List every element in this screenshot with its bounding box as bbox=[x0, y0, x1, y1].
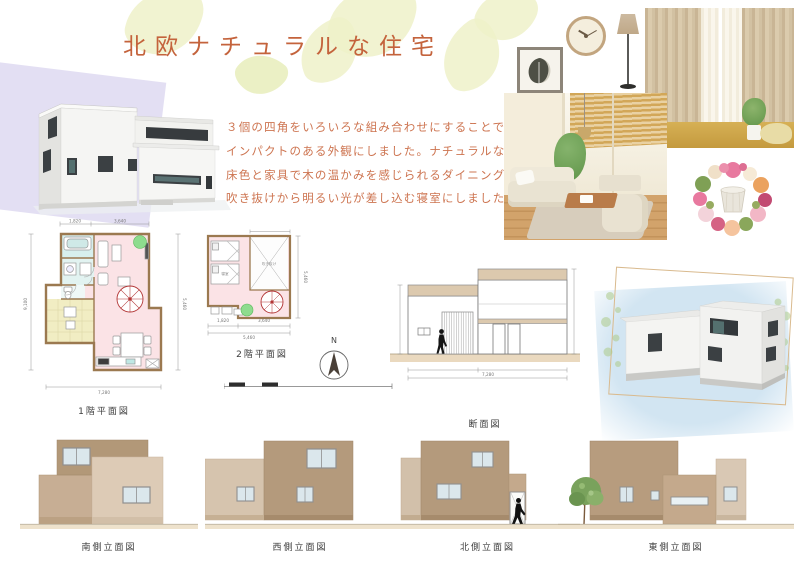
dimension-text: 7,280 bbox=[482, 372, 494, 377]
clock-center-dot bbox=[584, 34, 588, 38]
spiral-staircase bbox=[261, 291, 283, 313]
plant bbox=[241, 304, 253, 316]
svg-text:7,280: 7,280 bbox=[98, 390, 110, 395]
house-3d-render-front bbox=[15, 88, 237, 218]
page-title: 北欧ナチュラルな住宅 bbox=[123, 27, 443, 61]
elevation-east: 東側立面図 bbox=[558, 432, 794, 553]
spiral-staircase bbox=[117, 286, 143, 312]
presentation-board: { "page": { "title": "北欧ナチュラルな住宅" }, "de… bbox=[0, 0, 794, 561]
lamp-base bbox=[620, 84, 636, 89]
svg-text:5,460: 5,460 bbox=[182, 298, 187, 310]
concept-description: ３個の四角をいろいろな組み合わせにすることで インパクトのある外観にしました。ナ… bbox=[226, 116, 498, 211]
section-drawing: 7,280 断面図 bbox=[390, 258, 580, 430]
elevation-south: 南側立面図 bbox=[20, 432, 198, 553]
scale-bar bbox=[224, 380, 394, 390]
elevation-west: 西側立面図 bbox=[205, 432, 395, 553]
description-line: インパクトのある外観にしました。ナチュラルな bbox=[226, 140, 498, 164]
elevation-north-label: 北側立面図 bbox=[395, 540, 580, 553]
elevation-east-label: 東側立面図 bbox=[558, 540, 794, 553]
svg-text:吹き抜け: 吹き抜け bbox=[262, 261, 277, 266]
north-compass: N bbox=[316, 334, 352, 386]
small-cube bbox=[620, 310, 708, 381]
north-arrow-icon bbox=[328, 352, 340, 376]
monstera-leaf-icon bbox=[520, 50, 560, 90]
plant-pot bbox=[747, 125, 761, 140]
svg-text:寝室: 寝室 bbox=[221, 271, 229, 276]
ground bbox=[390, 354, 580, 362]
living-room-photo bbox=[504, 93, 667, 240]
left-cube bbox=[39, 104, 137, 210]
plant bbox=[134, 236, 147, 249]
svg-text:3,640: 3,640 bbox=[114, 219, 126, 224]
floor-lamp-photo bbox=[615, 14, 641, 92]
lamp-pole bbox=[627, 34, 629, 84]
svg-text:1,820: 1,820 bbox=[69, 219, 81, 224]
elevation-north: 北側立面図 bbox=[395, 432, 580, 553]
plan-2f-label: 2階平面図 bbox=[198, 347, 326, 360]
cushion bbox=[760, 123, 792, 144]
floor-plan-1f: 1,820 3,640 7,280 9,100 5,460 1階平面図 bbox=[18, 217, 190, 417]
svg-text:1,820: 1,820 bbox=[217, 318, 229, 323]
description-line: 吹き抜けから明るい光が差し込む寝室にしました。 bbox=[226, 187, 498, 211]
floor-plan-2f: 寝室 吹き抜け 1,820 3,640 5,460 5,460 2階平面図 bbox=[198, 228, 326, 360]
description-line: ３個の四角をいろいろな組み合わせにすることで bbox=[226, 116, 498, 140]
elevation-south-label: 南側立面図 bbox=[20, 540, 198, 553]
elevation-west-label: 西側立面図 bbox=[205, 540, 395, 553]
lamp-shade bbox=[617, 14, 639, 34]
svg-text:9,100: 9,100 bbox=[23, 298, 28, 310]
flower-wreath-photo bbox=[688, 158, 778, 238]
plan-1f-label: 1階平面図 bbox=[18, 404, 190, 417]
description-line: 床色と家具で木の温かみを感じられるダイニング、 bbox=[226, 164, 498, 188]
house-3d-render-rear bbox=[610, 278, 786, 424]
right-boxes bbox=[133, 116, 219, 205]
section-label: 断面図 bbox=[390, 417, 580, 430]
ottoman bbox=[599, 175, 641, 191]
north-label: N bbox=[331, 336, 337, 345]
book bbox=[580, 195, 593, 203]
pendant-cord bbox=[584, 93, 585, 129]
framed-leaf-art-photo bbox=[517, 47, 563, 93]
svg-text:3,640: 3,640 bbox=[258, 318, 270, 323]
big-cube bbox=[700, 301, 785, 390]
curtains-photo bbox=[645, 8, 794, 148]
wreath-pot bbox=[721, 187, 745, 212]
svg-text:5,460: 5,460 bbox=[303, 271, 308, 283]
louver-partition bbox=[442, 312, 473, 354]
window-frame bbox=[719, 8, 722, 126]
svg-text:5,460: 5,460 bbox=[243, 335, 255, 340]
wall-clock-photo bbox=[566, 16, 606, 56]
